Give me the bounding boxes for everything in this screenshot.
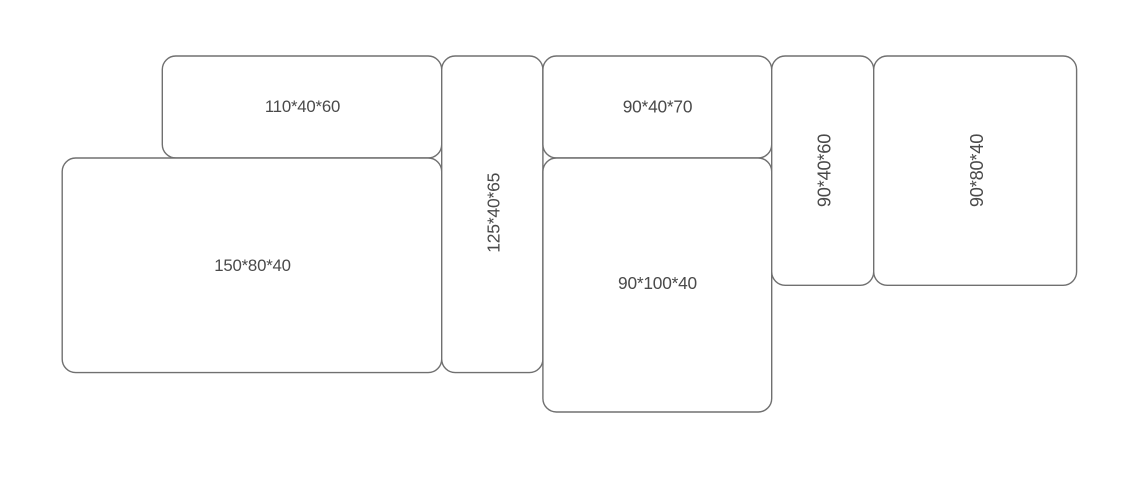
svg-text:90*80*40: 90*80*40 <box>967 134 987 207</box>
svg-text:90*40*60: 90*40*60 <box>815 134 835 207</box>
svg-text:150*80*40: 150*80*40 <box>214 256 291 275</box>
svg-text:125*40*65: 125*40*65 <box>483 173 503 253</box>
svg-text:90*100*40: 90*100*40 <box>618 273 697 293</box>
svg-text:110*40*60: 110*40*60 <box>265 97 340 116</box>
svg-text:90*40*70: 90*40*70 <box>623 96 693 116</box>
